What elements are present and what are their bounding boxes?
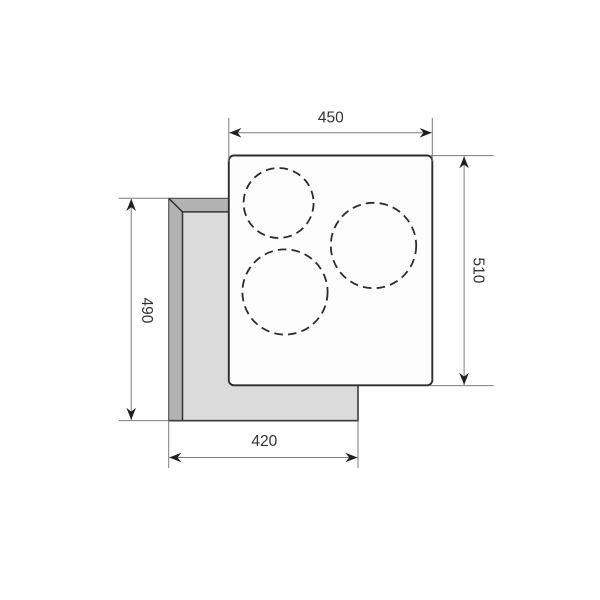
svg-text:490: 490 xyxy=(138,297,155,323)
svg-text:420: 420 xyxy=(251,433,277,450)
svg-text:450: 450 xyxy=(318,110,344,127)
svg-text:510: 510 xyxy=(469,257,486,283)
